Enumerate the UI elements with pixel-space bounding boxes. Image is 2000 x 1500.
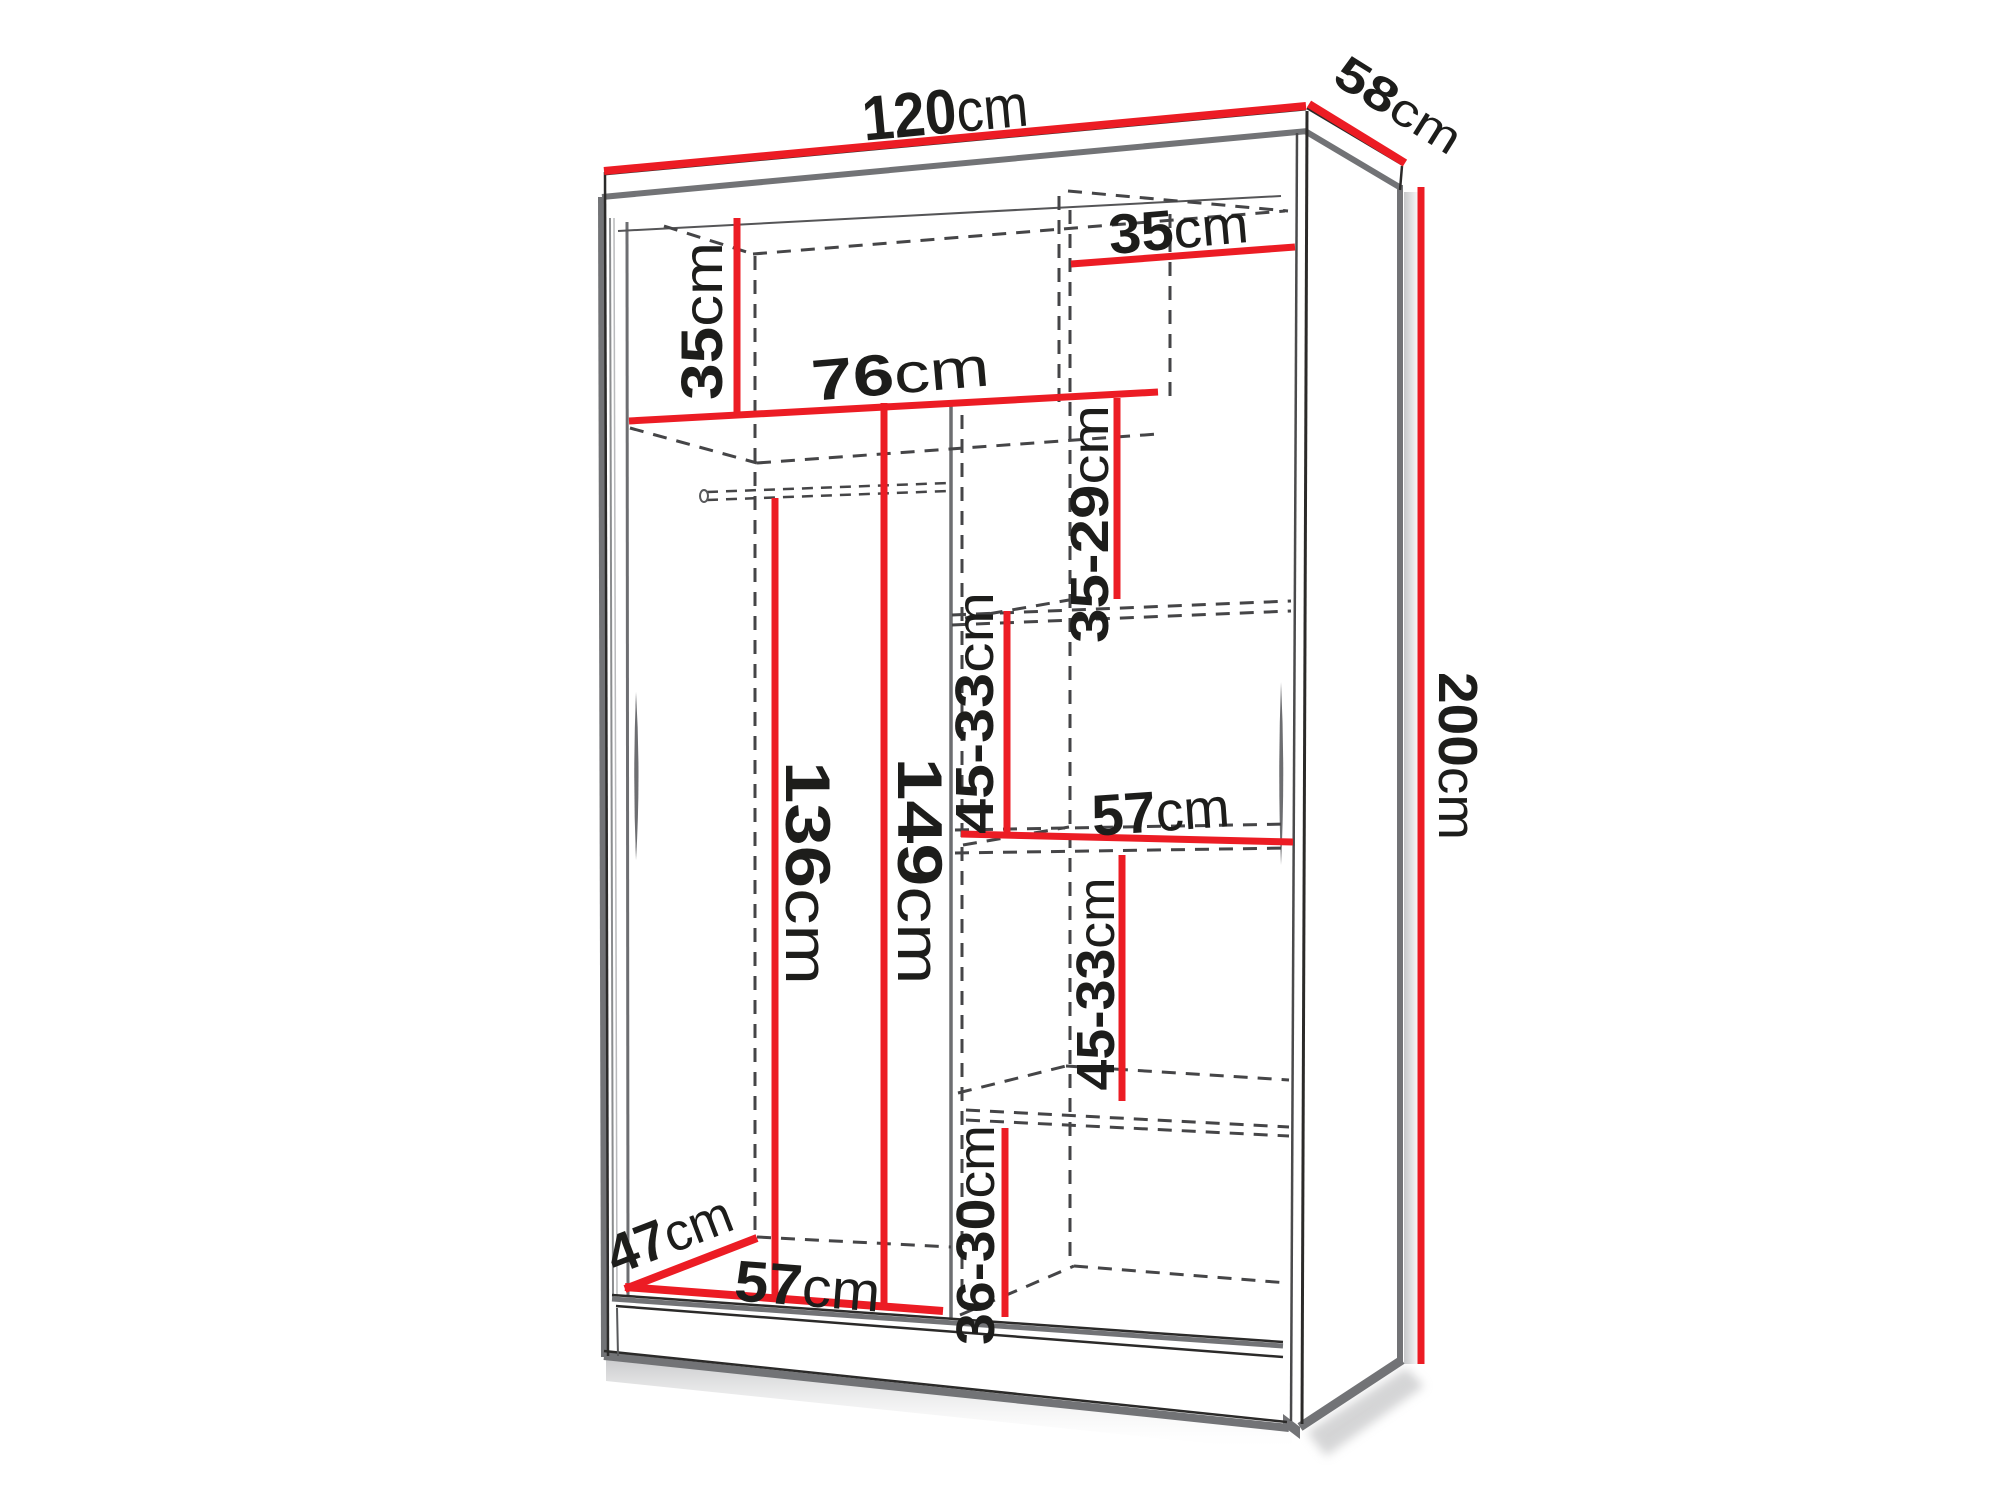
svg-text:57cm: 57cm [732,1248,883,1324]
svg-text:36-30cm: 36-30cm [946,1125,1006,1345]
svg-text:149cm: 149cm [884,758,954,985]
svg-text:45-33cm: 45-33cm [1066,878,1126,1091]
svg-text:200cm: 200cm [1427,672,1489,840]
svg-text:35cm: 35cm [670,242,735,400]
svg-text:35cm: 35cm [1106,191,1251,266]
svg-text:35-29cm: 35-29cm [1060,405,1120,643]
svg-text:57cm: 57cm [1090,774,1232,848]
svg-text:136cm: 136cm [772,761,842,985]
svg-text:45-33cm: 45-33cm [945,592,1005,834]
